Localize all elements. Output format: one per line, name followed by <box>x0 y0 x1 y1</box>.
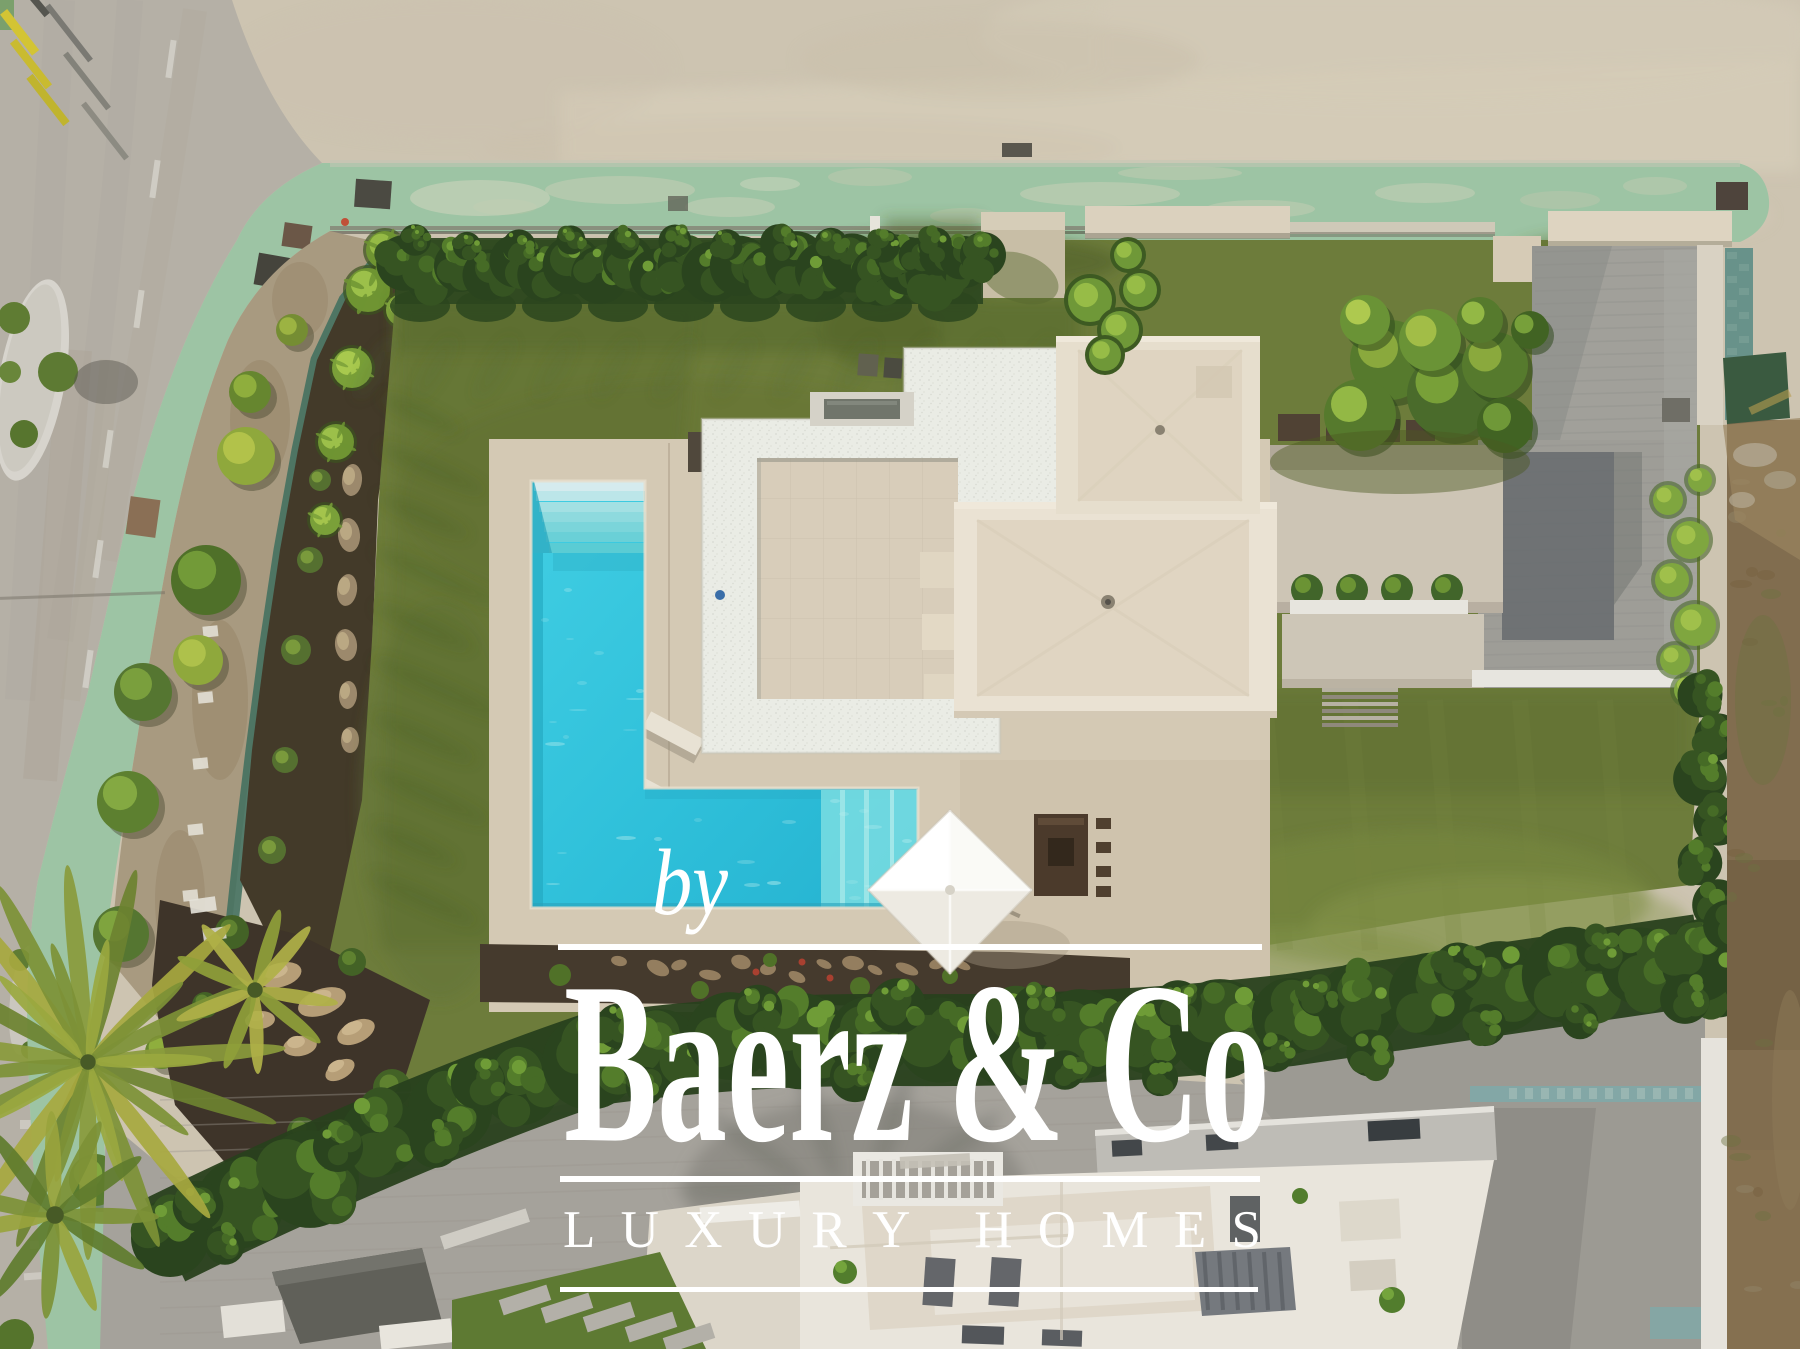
svg-text:Baerz & Co: Baerz & Co <box>564 935 1270 1190</box>
svg-text:by: by <box>652 831 728 935</box>
